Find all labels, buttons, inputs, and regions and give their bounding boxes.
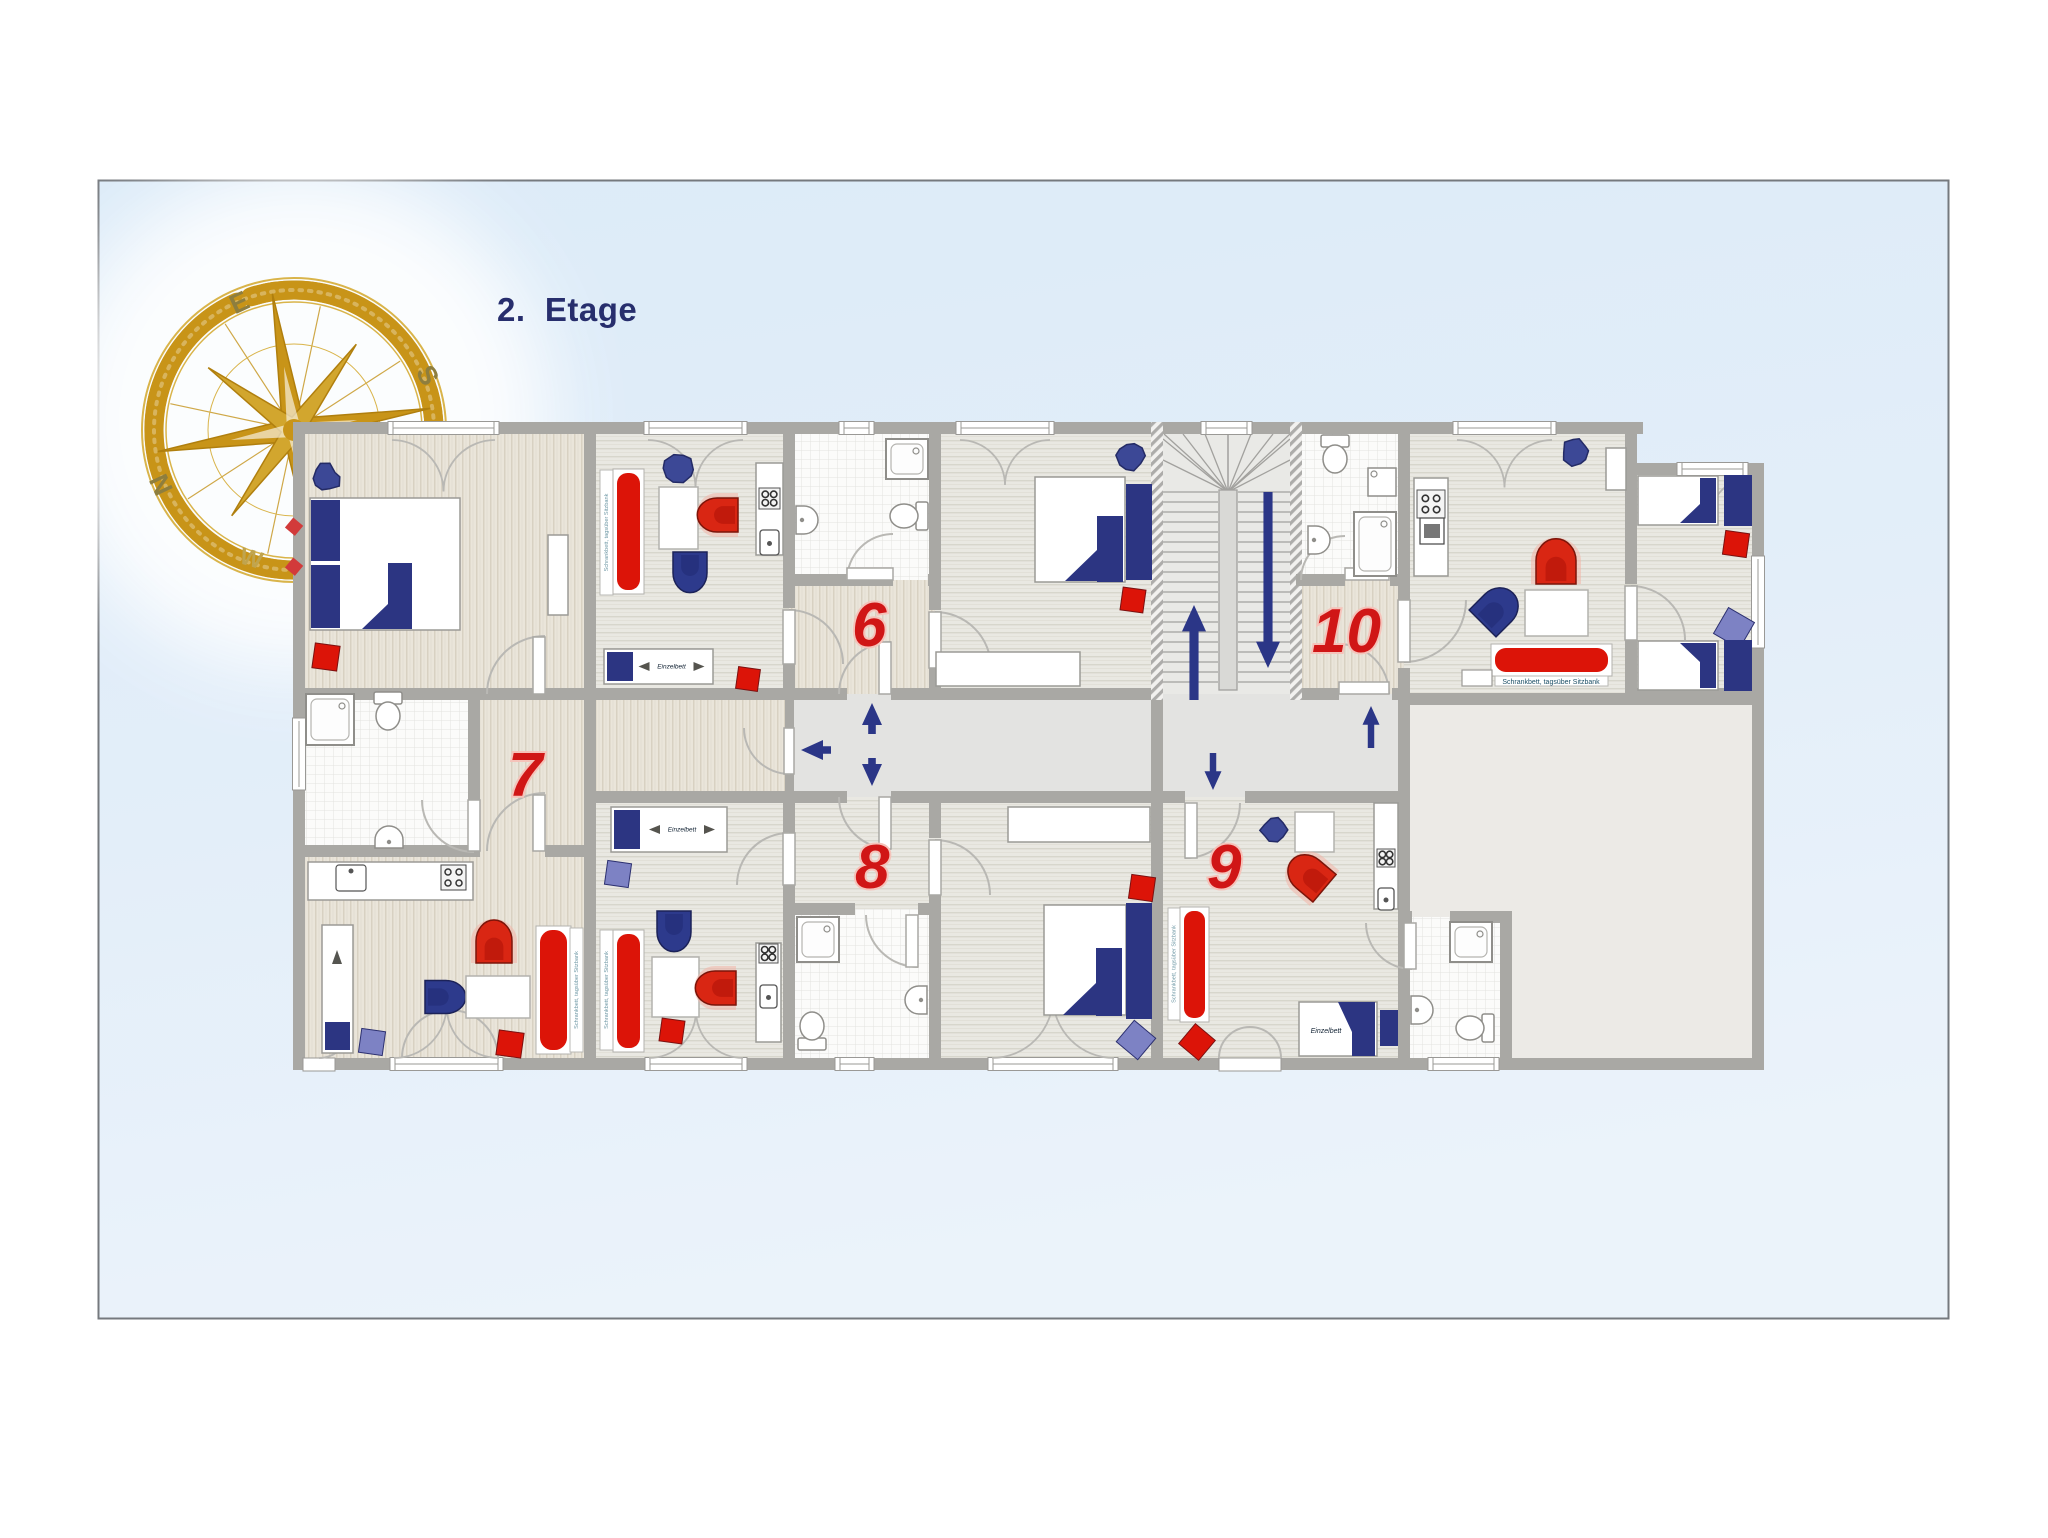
svg-text:9: 9 — [1207, 833, 1242, 902]
svg-text:Einzelbett: Einzelbett — [1311, 1028, 1343, 1035]
svg-text:Einzelbett: Einzelbett — [668, 827, 698, 834]
svg-text:6: 6 — [852, 591, 887, 660]
svg-text:8: 8 — [855, 833, 890, 902]
svg-text:Schrankbett, tagsüber Sitzbank: Schrankbett, tagsüber Sitzbank — [604, 951, 610, 1029]
svg-text:Schrankbett, tagsüber Sitzbank: Schrankbett, tagsüber Sitzbank — [604, 493, 610, 571]
svg-text:Schrankbett, tagsüber Sitzbank: Schrankbett, tagsüber Sitzbank — [574, 951, 580, 1029]
svg-text:7: 7 — [508, 741, 545, 810]
svg-text:Schrankbett, tagsüber Sitzbank: Schrankbett, tagsüber Sitzbank — [1171, 925, 1177, 1003]
svg-text:Einzelbett: Einzelbett — [657, 664, 687, 671]
svg-text:Schrankbett, tagsüber Sitzbank: Schrankbett, tagsüber Sitzbank — [1502, 679, 1600, 686]
svg-text:2. Etage: 2. Etage — [497, 291, 637, 328]
svg-text:10: 10 — [1312, 597, 1381, 666]
